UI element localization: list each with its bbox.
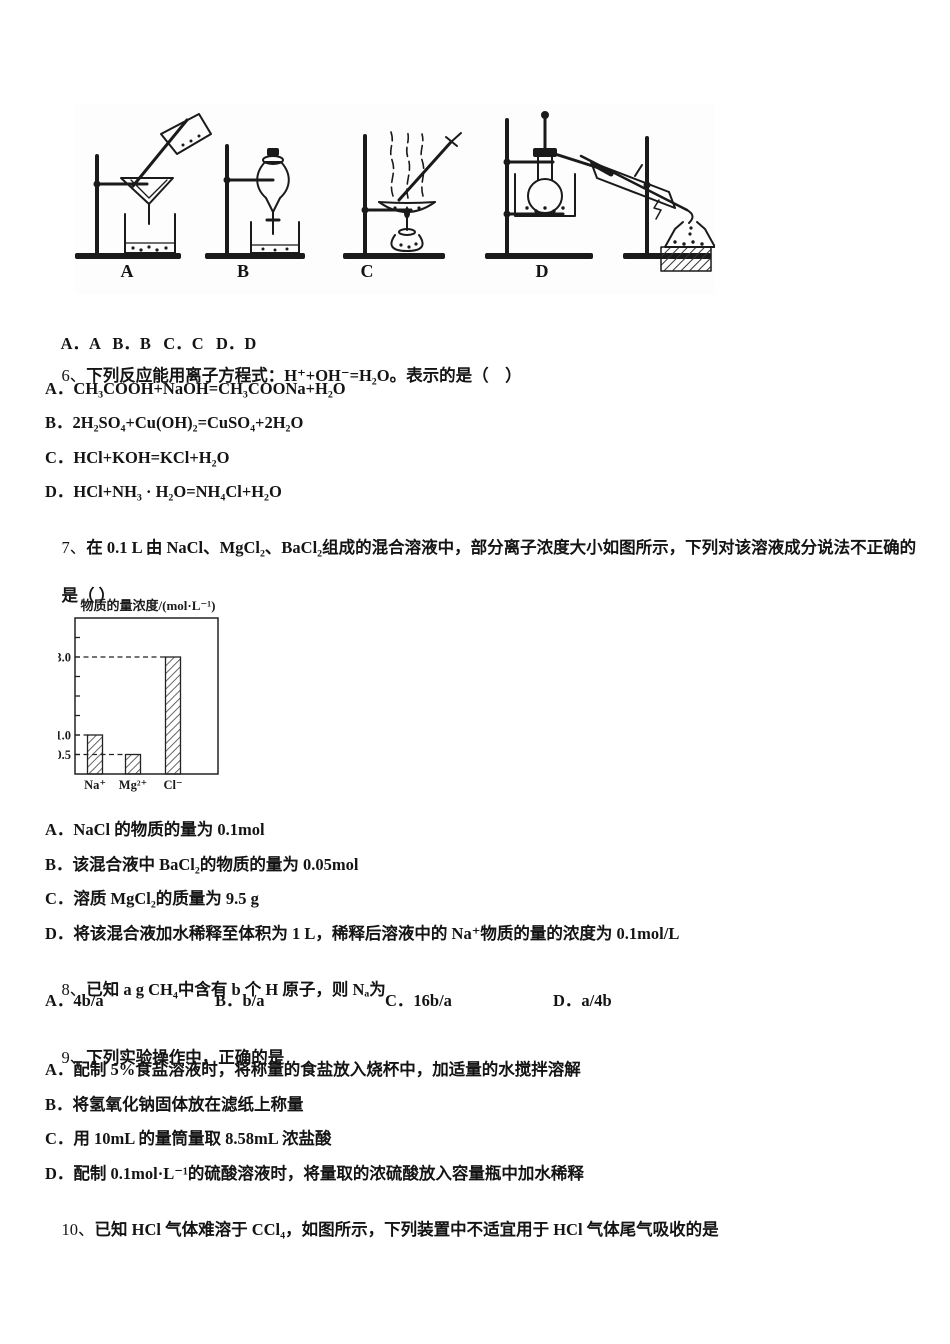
question-9-option-c: C．用 10mL 的量筒量取 8.58mL 浓盐酸 — [45, 1128, 331, 1150]
question-9-option-a: A．配制 5%食盐溶液时，将称量的食盐放入烧杯中，加适量的水搅拌溶解 — [45, 1059, 581, 1081]
option-text: A．配制 5%食盐溶液时，将称量的食盐放入烧杯中，加适量的水搅拌溶解 — [45, 1060, 581, 1079]
option-text: A．CH₃COOH+NaOH=CH₃COONa+H₂O — [45, 379, 346, 398]
option-text: A．NaCl 的物质的量为 0.1mol — [45, 820, 265, 839]
chart-ytick-label: 3.0 — [58, 651, 71, 665]
option-text: D．HCl+NH₃ · H₂O=NH₄Cl+H₂O — [45, 482, 282, 501]
question-9: 9、下列实验操作中，正确的是 — [45, 1025, 284, 1091]
chart-category-label: Cl⁻ — [163, 778, 182, 792]
option-text: D．将该混合液加水稀释至体积为 1 L，稀释后溶液中的 Na⁺物质的量的浓度为 … — [45, 924, 679, 943]
option-text: D．配制 0.1mol·L⁻¹的硫酸溶液时，将量取的浓硫酸放入容量瓶中加水稀释 — [45, 1164, 584, 1183]
question-7: 7、在 0.1 L 由 NaCl、MgCl₂、BaCl₂组成的混合溶液中，部分离… — [45, 515, 916, 581]
question-6-option-c: C．HCl+KOH=KCl+H₂O — [45, 447, 229, 469]
chart-category-label: Na⁺ — [84, 778, 106, 792]
question-7-number: 7、 — [62, 538, 87, 557]
option-text: C．溶质 MgCl₂的质量为 9.5 g — [45, 889, 259, 908]
question-8-option-b: B．b/a — [215, 990, 385, 1012]
question-8-option-a: A．4b/a — [45, 990, 215, 1012]
apparatus-label-c: C — [361, 261, 374, 282]
option-text: B．2H₂SO₄+Cu(OH)₂=CuSO₄+2H₂O — [45, 413, 303, 432]
apparatus-C-evaporation — [343, 130, 461, 259]
ion-concentration-chart: 物质的量浓度/(mol·L⁻¹) Na⁺Mg²⁺Cl⁻3.01.00.5 — [58, 594, 313, 799]
question-8-options-row: A．4b/a B．b/a C．16b/a D．a/4b — [45, 990, 612, 1012]
question-7-option-b: B．该混合液中 BaCl₂的物质的量为 0.05mol — [45, 854, 358, 876]
question-7-stem-line1: 在 0.1 L 由 NaCl、MgCl₂、BaCl₂组成的混合溶液中，部分离子浓… — [86, 538, 916, 557]
question-9-option-d: D．配制 0.1mol·L⁻¹的硫酸溶液时，将量取的浓硫酸放入容量瓶中加水稀释 — [45, 1163, 584, 1185]
bar-chart-drawing: 物质的量浓度/(mol·L⁻¹) Na⁺Mg²⁺Cl⁻3.01.00.5 — [58, 594, 313, 799]
apparatus-label-d: D — [536, 261, 549, 282]
apparatus-B-separating-funnel — [205, 146, 305, 259]
question-10: 10、已知 HCl 气体难溶于 CCl₄，如图所示，下列装置中不适宜用于 HCl… — [45, 1197, 719, 1263]
question-8-option-c: C．16b/a — [385, 990, 553, 1012]
apparatus-drawing — [75, 104, 715, 294]
apparatus-label-b: B — [237, 261, 249, 282]
question-7-option-c: C．溶质 MgCl₂的质量为 9.5 g — [45, 888, 259, 910]
question-7-option-a: A．NaCl 的物质的量为 0.1mol — [45, 819, 265, 841]
chart-ytick-label: 1.0 — [58, 729, 71, 743]
question-10-stem: 已知 HCl 气体难溶于 CCl₄，如图所示，下列装置中不适宜用于 HCl 气体… — [95, 1220, 719, 1239]
apparatus-D-distillation — [485, 111, 715, 271]
question-10-number: 10、 — [62, 1220, 95, 1239]
chart-plot-area: Na⁺Mg²⁺Cl⁻3.01.00.5 — [58, 618, 218, 792]
question-7-option-d: D．将该混合液加水稀释至体积为 1 L，稀释后溶液中的 Na⁺物质的量的浓度为 … — [45, 923, 679, 945]
question-6-option-a: A．CH₃COOH+NaOH=CH₃COONa+H₂O — [45, 378, 346, 400]
option-text: B．该混合液中 BaCl₂的物质的量为 0.05mol — [45, 855, 358, 874]
question-6-option-d: D．HCl+NH₃ · H₂O=NH₄Cl+H₂O — [45, 481, 282, 503]
chart-ytick-label: 0.5 — [58, 748, 71, 762]
chart-category-label: Mg²⁺ — [119, 778, 147, 792]
apparatus-figure: A B C D — [75, 104, 715, 294]
chart-title: 物质的量浓度/(mol·L⁻¹) — [81, 598, 216, 613]
question-9-option-b: B．将氢氧化钠固体放在滤纸上称量 — [45, 1094, 304, 1116]
option-text: B．将氢氧化钠固体放在滤纸上称量 — [45, 1095, 304, 1114]
option-text: C．用 10mL 的量筒量取 8.58mL 浓盐酸 — [45, 1129, 331, 1148]
apparatus-A-filtration — [75, 114, 211, 259]
apparatus-label-a: A — [121, 261, 134, 282]
option-text: C．HCl+KOH=KCl+H₂O — [45, 448, 229, 467]
question-6-option-b: B．2H₂SO₄+Cu(OH)₂=CuSO₄+2H₂O — [45, 412, 303, 434]
question-8-option-d: D．a/4b — [553, 990, 612, 1012]
exam-page: A B C D A．A B．B C．C D．D 6、下列反应能用离子方程式：H⁺… — [0, 0, 950, 1344]
